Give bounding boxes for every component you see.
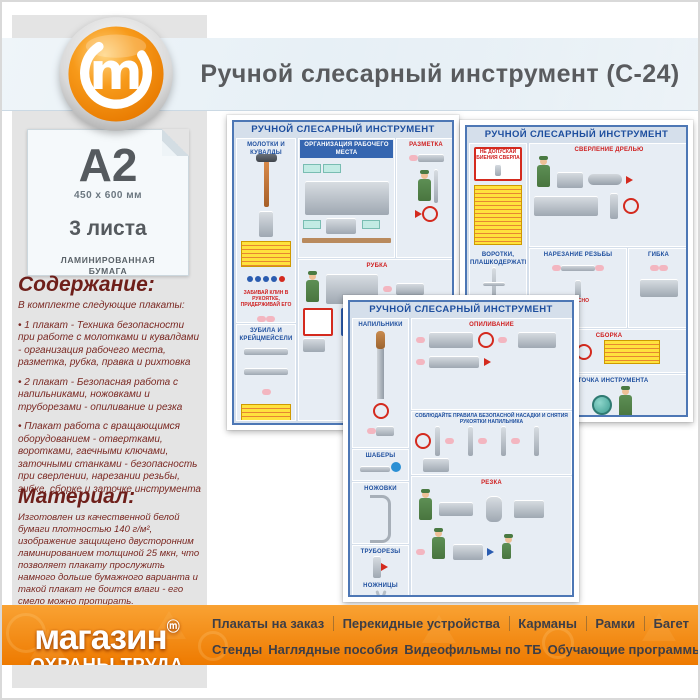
menu-divider <box>333 616 334 631</box>
menu-item-baguette[interactable]: Багет <box>651 616 692 631</box>
tap-cross-icon <box>561 265 595 271</box>
wrong-strike-box-icon <box>303 308 333 336</box>
safety-pictogram-row <box>237 270 295 288</box>
footer-menu-row1: Плакаты на заказ Перекидные устройства К… <box>209 616 692 631</box>
pipe-icon <box>486 496 502 522</box>
poster3-section-shears: ТРУБОРЕЗЫ НОЖНИЦЫ <box>352 545 409 597</box>
page-title: Ручной слесарный инструмент (С-24) <box>184 38 696 110</box>
worker-icon <box>432 537 445 559</box>
chisel-table <box>241 404 291 421</box>
hand-icon <box>416 337 425 343</box>
poster3-section-files: НАПИЛЬНИКИ <box>352 318 409 448</box>
footer-menu-row2: Стенды Наглядные пособия Видеофильмы по … <box>209 642 692 657</box>
shop-logo-icon: m <box>58 16 174 132</box>
chisel-icon <box>244 368 288 375</box>
shear-machine-icon <box>453 544 483 560</box>
menu-item-frames[interactable]: Рамки <box>592 616 638 631</box>
file-stand-icon <box>501 426 506 456</box>
menu-item-posters[interactable]: Плакаты на заказ <box>209 616 327 631</box>
poster3-section-cutting: РЕЗКА <box>411 476 572 597</box>
menu-divider <box>644 616 645 631</box>
vise-jaws-icon <box>534 196 598 216</box>
material-heading: Материал: <box>18 486 202 508</box>
poster1-section-workplace: ОРГАНИЗАЦИЯ РАБОЧЕГО МЕСТА <box>298 138 395 258</box>
callout-box-icon <box>303 164 321 173</box>
pipe-cutter-icon <box>373 556 381 578</box>
poster3-section-scrapers: ШАБЕРЫ <box>352 449 409 481</box>
drill-bit-icon <box>610 193 618 219</box>
red-arrow-icon <box>484 358 491 366</box>
material-text: Изготовлен из качественной белой бумаги … <box>18 512 202 608</box>
vise-icon <box>557 172 583 188</box>
footer-bar: магазинⓜ ОХРАНЫ ТРУДА Плакаты на заказ П… <box>2 605 698 665</box>
poster1-section-hammers: МОЛОТКИ И КУВАЛДЫ ЗАБИВАЙ КЛИН В РУКОЯТК… <box>236 138 296 323</box>
callout-box-icon <box>323 164 341 173</box>
contents-heading: Содержание: <box>18 274 202 296</box>
scriber-icon <box>434 169 438 203</box>
workpiece-icon <box>429 356 479 368</box>
tap-wrench-bar-icon <box>483 282 505 286</box>
worker-icon <box>306 280 319 302</box>
vise-icon <box>518 332 556 348</box>
danger-circle-icon <box>373 403 389 419</box>
ppe-pictogram-icon <box>263 276 269 282</box>
contents-section: Содержание: В комплекте следующие плакат… <box>18 274 202 503</box>
brand-mark-icon: ⓜ <box>167 619 180 634</box>
callout-box-icon <box>362 220 380 229</box>
vise-icon <box>429 332 473 348</box>
bits-yellow-box <box>604 340 660 364</box>
anvil-icon <box>303 338 325 352</box>
hand-icon <box>445 438 454 444</box>
marking-plate-icon <box>418 154 444 162</box>
vise-icon <box>423 458 449 472</box>
drill-warning-box: НЕ ДОПУСКАЙ БИЕНИЯ СВЕРЛА <box>474 147 522 181</box>
poster-thumbnail-3[interactable]: РУЧНОЙ СЛЕСАРНЫЙ ИНСТРУМЕНТ НАПИЛЬНИКИ Ш… <box>343 295 579 602</box>
ppe-pictogram-icon <box>255 276 261 282</box>
sledgehammer-head-icon <box>259 211 273 237</box>
format-spec-card: А2 450 x 600 мм 3 листа ЛАМИНИРОВАННАЯ Б… <box>27 129 189 276</box>
hand-icon <box>659 265 668 271</box>
drilling-speed-table <box>474 185 522 245</box>
ppe-pictogram-icon <box>247 276 253 282</box>
menu-divider <box>586 616 587 631</box>
contents-item: • 1 плакат - Техника безопасности при ра… <box>18 320 202 370</box>
menu-item-visual-aids[interactable]: Наглядные пособия <box>265 642 401 657</box>
hand-icon <box>409 155 418 161</box>
shop-logo[interactable]: m <box>58 16 174 132</box>
file-blade-icon <box>377 349 384 399</box>
worker-icon <box>418 179 431 201</box>
file-handle-icon <box>376 331 385 349</box>
vise-icon <box>376 426 394 436</box>
file-stand-icon <box>534 426 539 456</box>
workpiece-icon <box>439 502 473 516</box>
menu-item-pockets[interactable]: Карманы <box>515 616 580 631</box>
blue-arrow-icon <box>487 548 494 556</box>
hand-icon <box>367 428 376 434</box>
worker-icon <box>419 498 432 520</box>
callout-box-icon <box>303 220 321 229</box>
chisel-icon <box>244 348 288 355</box>
bending-vise-icon <box>640 279 678 297</box>
bench-drawer-icon <box>326 218 356 234</box>
red-arrow-icon <box>381 563 388 571</box>
hand-icon <box>262 389 271 395</box>
menu-item-flip-systems[interactable]: Перекидные устройства <box>340 616 503 631</box>
danger-circle-icon <box>415 433 431 449</box>
poster3-title: РУЧНОЙ СЛЕСАРНЫЙ ИНСТРУМЕНТ <box>350 302 572 317</box>
menu-divider <box>509 616 510 631</box>
prohibition-pictogram-icon <box>279 276 285 282</box>
hand-drill-icon <box>588 174 622 185</box>
workbench-icon <box>305 181 389 215</box>
menu-item-stands[interactable]: Стенды <box>209 642 265 657</box>
hacksaw-icon <box>370 495 391 543</box>
footer-menu: Плакаты на заказ Перекидные устройства К… <box>209 610 692 662</box>
file-stand-icon <box>435 426 440 456</box>
poster1-section-marking: РАЗМЕТКА <box>396 138 454 258</box>
hand-icon <box>478 438 487 444</box>
poster1-title: РУЧНОЙ СЛЕСАРНЫЙ ИНСТРУМЕНТ <box>234 122 452 137</box>
footer-brand[interactable]: магазинⓜ ОХРАНЫ ТРУДА <box>12 610 202 665</box>
hand-icon <box>511 438 520 444</box>
danger-circle-icon <box>623 198 639 214</box>
hammer-weight-table <box>241 241 291 267</box>
hand-icon <box>650 265 659 271</box>
danger-circle-icon <box>478 332 494 348</box>
poster1-section-chisels: ЗУБИЛА И КРЕЙЦМЕЙСЕЛИ <box>236 324 296 421</box>
material-section: Материал: Изготовлен из качественной бел… <box>18 486 202 615</box>
worker-icon <box>537 165 550 187</box>
red-arrow-icon <box>415 210 422 218</box>
file-stand-icon <box>468 426 473 456</box>
brand-line2: ОХРАНЫ ТРУДА <box>12 655 202 665</box>
hand-icon <box>416 549 425 555</box>
poster3-section-handle-rules: СОБЛЮДАЙТЕ ПРАВИЛА БЕЗОПАСНОЙ НАСАДКИ И … <box>411 411 572 475</box>
ppe-pictogram-icon <box>271 276 277 282</box>
sheets-label: 3 листа <box>28 217 188 241</box>
page: Ручной слесарный инструмент (С-24) m А2 … <box>0 0 700 700</box>
worker-icon <box>619 395 632 417</box>
menu-item-training-programs[interactable]: Обучающие программы <box>545 642 698 657</box>
poster2-title: РУЧНОЙ СЛЕСАРНЫЙ ИНСТРУМЕНТ <box>467 127 686 142</box>
hand-icon <box>266 316 275 322</box>
blue-circle-icon <box>391 462 401 472</box>
wedge-note: ЗАБИВАЙ КЛИН В РУКОЯТКЕ, ПРИДЕРЖИВАЙ ЕГО <box>237 288 295 308</box>
grinding-wheel-icon <box>592 395 612 415</box>
menu-item-safety-videos[interactable]: Видеофильмы по ТБ <box>401 642 544 657</box>
poster2-section-bending: ГИБКА <box>628 248 688 328</box>
hand-icon <box>552 265 561 271</box>
contents-intro: В комплекте следующие плакаты: <box>18 300 202 313</box>
floor-board-icon <box>302 238 391 243</box>
hand-icon <box>383 286 392 292</box>
poster2-section-drilling: СВЕРЛЕНИЕ ДРЕЛЬЮ <box>529 143 688 247</box>
contents-item: • 2 плакат - Безопасная работа с напильн… <box>18 377 202 415</box>
danger-circle-icon <box>422 206 438 222</box>
poster3-section-hacksaws: НОЖОВКИ ОПАСНО <box>352 482 409 544</box>
size-label: 450 x 600 мм <box>28 190 188 201</box>
hand-icon <box>257 316 266 322</box>
page-corner-fold-icon <box>162 129 189 156</box>
vise-icon <box>396 283 424 295</box>
hammer-icon <box>264 161 269 207</box>
worker-icon <box>502 543 511 559</box>
drill-bit-icon <box>495 164 501 176</box>
hand-icon <box>498 337 507 343</box>
brand-line1: магазинⓜ <box>12 610 202 655</box>
sheet-metal-icon <box>514 500 544 518</box>
hand-icon <box>595 265 604 271</box>
poster3-section-filing: ОПИЛИВАНИЕ <box>411 318 572 410</box>
red-arrow-icon <box>626 176 633 184</box>
hand-icon <box>416 359 425 365</box>
scraper-icon <box>360 466 390 472</box>
svg-text:m: m <box>89 43 142 102</box>
